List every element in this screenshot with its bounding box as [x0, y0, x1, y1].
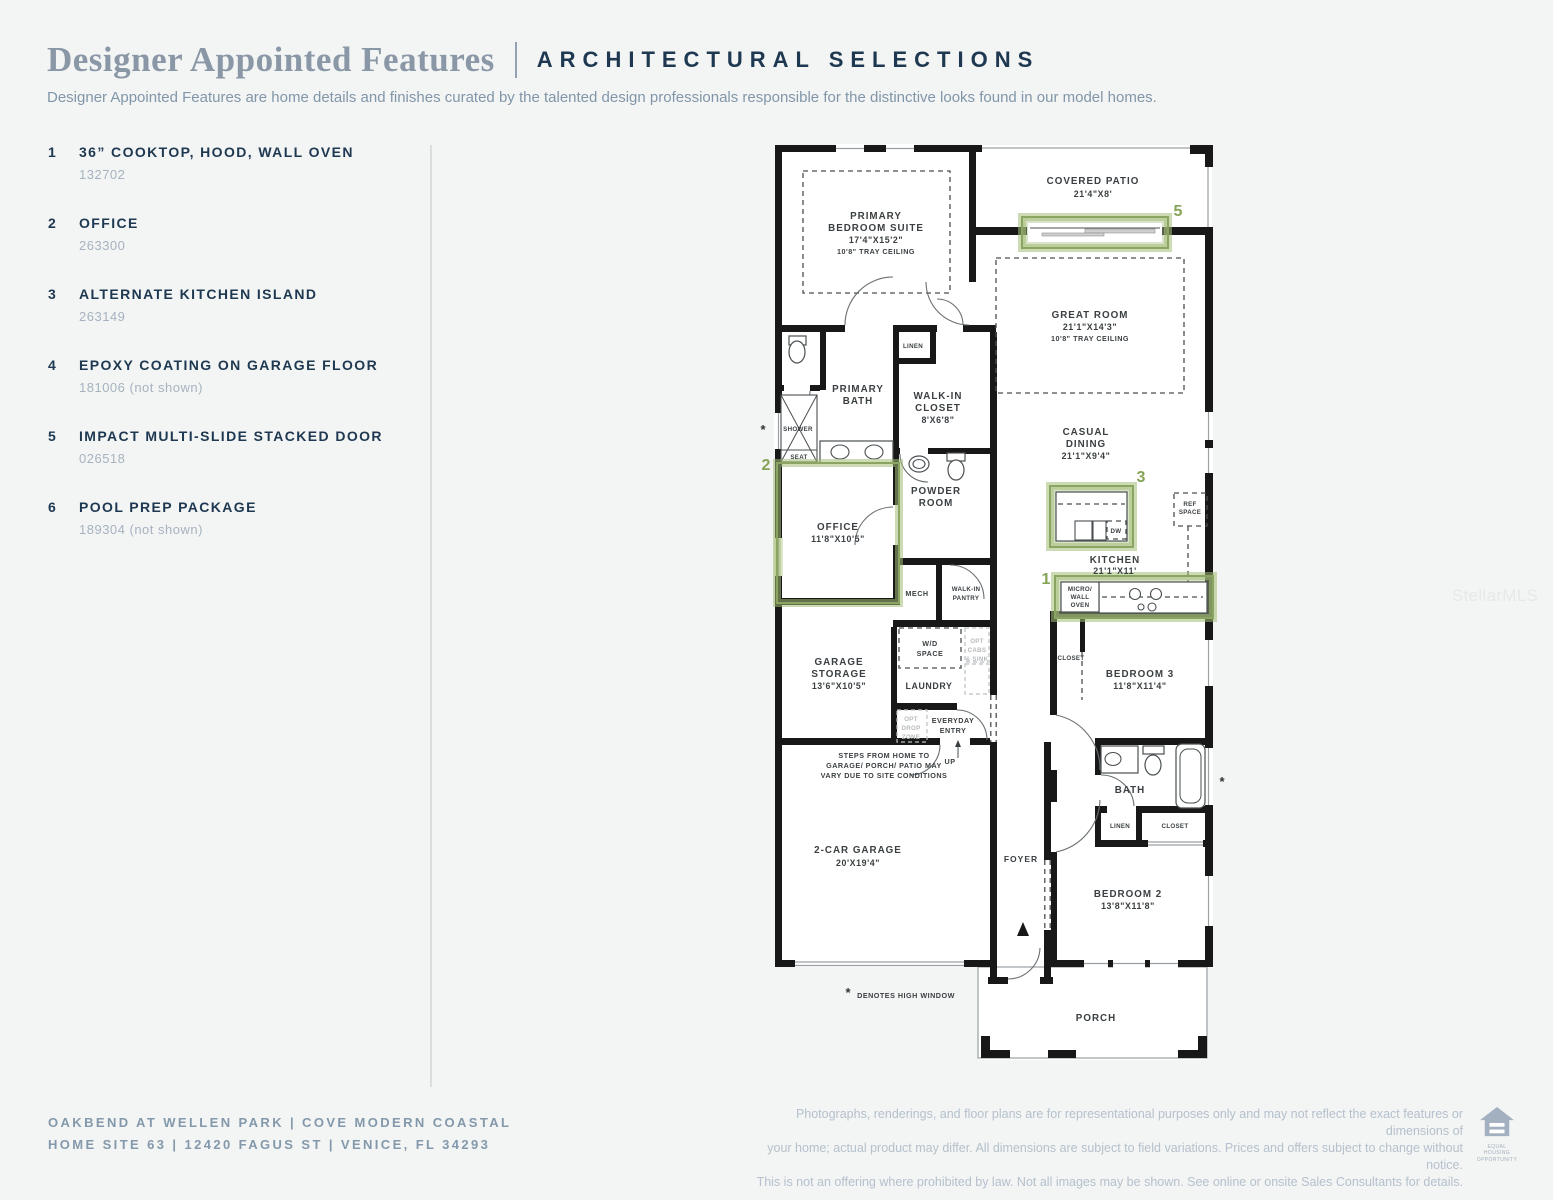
label-dw: DW	[1111, 528, 1122, 535]
watermark: StellarMLS	[1452, 586, 1538, 606]
asterisk-note: *	[845, 985, 851, 1000]
label-great-room: GREAT ROOM	[1052, 310, 1129, 321]
label-casual-dining-2: DINING	[1066, 439, 1106, 450]
label-seat: SEAT	[790, 454, 807, 461]
page-header: Designer Appointed Features ARCHITECTURA…	[47, 40, 1157, 106]
label-foyer: FOYER	[1004, 854, 1038, 864]
footer-left: OAKBEND AT WELLEN PARK | COVE MODERN COA…	[48, 1112, 511, 1156]
vertical-divider	[430, 145, 432, 1087]
room-casual-dining: CASUAL DINING 21'1"X9'4"	[1062, 427, 1111, 461]
door-panel	[1085, 229, 1155, 233]
label-great-room-ceiling: 10'8" TRAY CEILING	[1051, 334, 1129, 343]
label-opt-drop-1: OPT	[904, 716, 918, 723]
label-linen-upper: LINEN	[903, 343, 923, 350]
feature-name: OFFICE	[79, 215, 139, 231]
floor-plan: COVERED PATIO 21'4"X8' 5 PRIMARY BEDROOM…	[750, 140, 1230, 1100]
label-casual-dining-dims: 21'1"X9'4"	[1062, 451, 1111, 461]
feature-code: 181006 (not shown)	[79, 380, 378, 395]
label-garage-dims: 20'X19'4"	[836, 858, 880, 868]
feature-code: 263149	[79, 309, 317, 324]
label-steps-1: STEPS FROM HOME TO	[838, 751, 929, 760]
highlight-number-3: 3	[1137, 469, 1146, 486]
label-covered-patio: COVERED PATIO	[1047, 176, 1140, 187]
label-powder-1: POWDER	[911, 486, 961, 497]
highlight-number-5: 5	[1174, 203, 1183, 220]
label-bedroom3-dims: 11'8"X11'4"	[1113, 681, 1166, 691]
label-wic-2: CLOSET	[915, 403, 961, 414]
label-bedroom2: BEDROOM 2	[1094, 889, 1162, 900]
feature-item: 6 POOL PREP PACKAGE 189304 (not shown)	[48, 499, 418, 537]
feature-item: 3 ALTERNATE KITCHEN ISLAND 263149	[48, 286, 418, 324]
label-shower: SHOWER	[783, 426, 813, 433]
highlight-island	[1050, 486, 1133, 547]
label-closet-b3: CLOSET	[1058, 655, 1085, 662]
label-storage-1: GARAGE	[814, 657, 863, 668]
label-linen-lower: LINEN	[1110, 823, 1130, 830]
feature-number: 4	[48, 357, 79, 395]
title-row: Designer Appointed Features ARCHITECTURA…	[47, 40, 1157, 80]
label-steps-3: VARY DUE TO SITE CONDITIONS	[821, 771, 948, 780]
feature-number: 6	[48, 499, 79, 537]
feature-name: EPOXY COATING ON GARAGE FLOOR	[79, 357, 378, 373]
door-panel	[1042, 233, 1104, 236]
label-bedroom3: BEDROOM 3	[1106, 669, 1174, 680]
label-opt-cabs-1: OPT	[970, 638, 984, 645]
label-micro-3: OVEN	[1071, 602, 1090, 609]
label-wd-1: W/D	[922, 639, 937, 648]
label-primary-suite-2: BEDROOM SUITE	[828, 223, 924, 234]
feature-number: 2	[48, 215, 79, 253]
asterisk-left: *	[760, 422, 766, 437]
label-bedroom2-dims: 13'8"X11'8"	[1101, 901, 1155, 911]
label-micro-2: WALL	[1071, 594, 1090, 601]
label-covered-patio-dims: 21'4"X8'	[1074, 189, 1113, 199]
label-wic-1: WALK-IN	[914, 391, 963, 402]
label-bath: BATH	[1115, 785, 1145, 796]
feature-number: 3	[48, 286, 79, 324]
label-storage-dims: 13'6"X10'5"	[812, 681, 866, 691]
feature-item: 1 36” COOKTOP, HOOD, WALL OVEN 132702	[48, 144, 418, 182]
feature-item: 4 EPOXY COATING ON GARAGE FLOOR 181006 (…	[48, 357, 418, 395]
label-storage-2: STORAGE	[811, 669, 866, 680]
label-office: OFFICE	[817, 522, 859, 533]
page-subtitle: ARCHITECTURAL SELECTIONS	[537, 47, 1040, 73]
label-micro-1: MICRO/	[1068, 586, 1092, 593]
label-great-room-dims: 21'1"X14'3"	[1063, 322, 1117, 332]
feature-code: 026518	[79, 451, 383, 466]
disclaimer-line: your home; actual product may differ. Al…	[743, 1140, 1463, 1174]
feature-number: 5	[48, 428, 79, 466]
label-high-window: DENOTES HIGH WINDOW	[857, 991, 955, 1000]
disclaimer-line: Photographs, renderings, and floor plans…	[743, 1106, 1463, 1140]
label-kitchen: KITCHEN	[1090, 555, 1141, 566]
feature-item: 2 OFFICE 263300	[48, 215, 418, 253]
label-office-dims: 11'8"X10'5"	[811, 534, 865, 544]
features-list: 1 36” COOKTOP, HOOD, WALL OVEN 132702 2 …	[48, 144, 418, 570]
equal-housing-text-1: EQUAL HOUSING	[1476, 1144, 1518, 1156]
label-laundry: LAUNDRY	[906, 681, 953, 691]
disclaimer-line: This is not an offering where prohibited…	[743, 1174, 1463, 1191]
label-opt-drop-2: DROP	[901, 725, 920, 732]
label-wic-dims: 8'X6'8"	[921, 415, 954, 425]
label-pantry-1: WALK-IN	[952, 586, 981, 593]
label-garage: 2-CAR GARAGE	[814, 845, 902, 856]
note-steps: STEPS FROM HOME TO GARAGE/ PORCH/ PATIO …	[821, 751, 948, 780]
label-steps-2: GARAGE/ PORCH/ PATIO MAY	[826, 761, 942, 770]
address-line: HOME SITE 63 | 12420 FAGUS ST | VENICE, …	[48, 1134, 511, 1156]
label-mech: MECH	[905, 589, 928, 598]
label-casual-dining-1: CASUAL	[1063, 427, 1110, 438]
room-porch: PORCH	[1076, 1013, 1116, 1024]
page-description: Designer Appointed Features are home det…	[47, 89, 1157, 106]
label-opt-drop-3: ZONE	[902, 734, 920, 741]
highlight-slide-door	[1022, 217, 1168, 248]
disclaimer: Photographs, renderings, and floor plans…	[743, 1106, 1463, 1191]
label-up: UP	[945, 757, 956, 766]
label-porch: PORCH	[1076, 1013, 1116, 1024]
feature-name: 36” COOKTOP, HOOD, WALL OVEN	[79, 144, 354, 160]
label-opt-cabs-3: & SINK	[966, 656, 989, 663]
room-foyer: FOYER	[1004, 854, 1038, 864]
label-primary-bath-1: PRIMARY	[832, 384, 884, 395]
title-divider	[515, 42, 517, 78]
label-powder-2: ROOM	[919, 498, 953, 509]
community-line: OAKBEND AT WELLEN PARK | COVE MODERN COA…	[48, 1112, 511, 1134]
feature-name: IMPACT MULTI-SLIDE STACKED DOOR	[79, 428, 383, 444]
label-entry-1: EVERYDAY	[932, 716, 975, 725]
highlight-number-2: 2	[762, 457, 771, 474]
feature-code: 132702	[79, 167, 354, 182]
label-ref-2: SPACE	[1179, 509, 1201, 516]
feature-name: ALTERNATE KITCHEN ISLAND	[79, 286, 317, 302]
label-kitchen-dims: 21'1"X11'	[1093, 566, 1137, 576]
label-primary-suite-1: PRIMARY	[850, 211, 902, 222]
label-wd-2: SPACE	[917, 649, 944, 658]
feature-code: 263300	[79, 238, 139, 253]
feature-name: POOL PREP PACKAGE	[79, 499, 257, 515]
page-title: Designer Appointed Features	[47, 40, 495, 80]
label-pantry-2: PANTRY	[953, 595, 980, 602]
label-entry-2: ENTRY	[940, 726, 967, 735]
label-primary-suite-ceiling: 10'8" TRAY CEILING	[837, 247, 915, 256]
feature-number: 1	[48, 144, 79, 182]
equal-housing-logo: EQUAL HOUSING OPPORTUNITY	[1476, 1106, 1518, 1163]
room-garage-storage: GARAGE STORAGE 13'6"X10'5"	[811, 657, 866, 691]
highlight-number-1: 1	[1042, 571, 1051, 588]
equal-housing-icon	[1478, 1106, 1516, 1138]
label-opt-cabs-2: CABS	[968, 647, 987, 654]
label-ref-1: REF	[1183, 501, 1196, 508]
feature-item: 5 IMPACT MULTI-SLIDE STACKED DOOR 026518	[48, 428, 418, 466]
equal-housing-text-2: OPPORTUNITY	[1476, 1157, 1518, 1163]
label-primary-bath-2: BATH	[843, 396, 873, 407]
label-primary-suite-dims: 17'4"X15'2"	[849, 235, 903, 245]
label-closet-lower: CLOSET	[1162, 823, 1189, 830]
asterisk-right: *	[1219, 774, 1225, 789]
feature-code: 189304 (not shown)	[79, 522, 257, 537]
